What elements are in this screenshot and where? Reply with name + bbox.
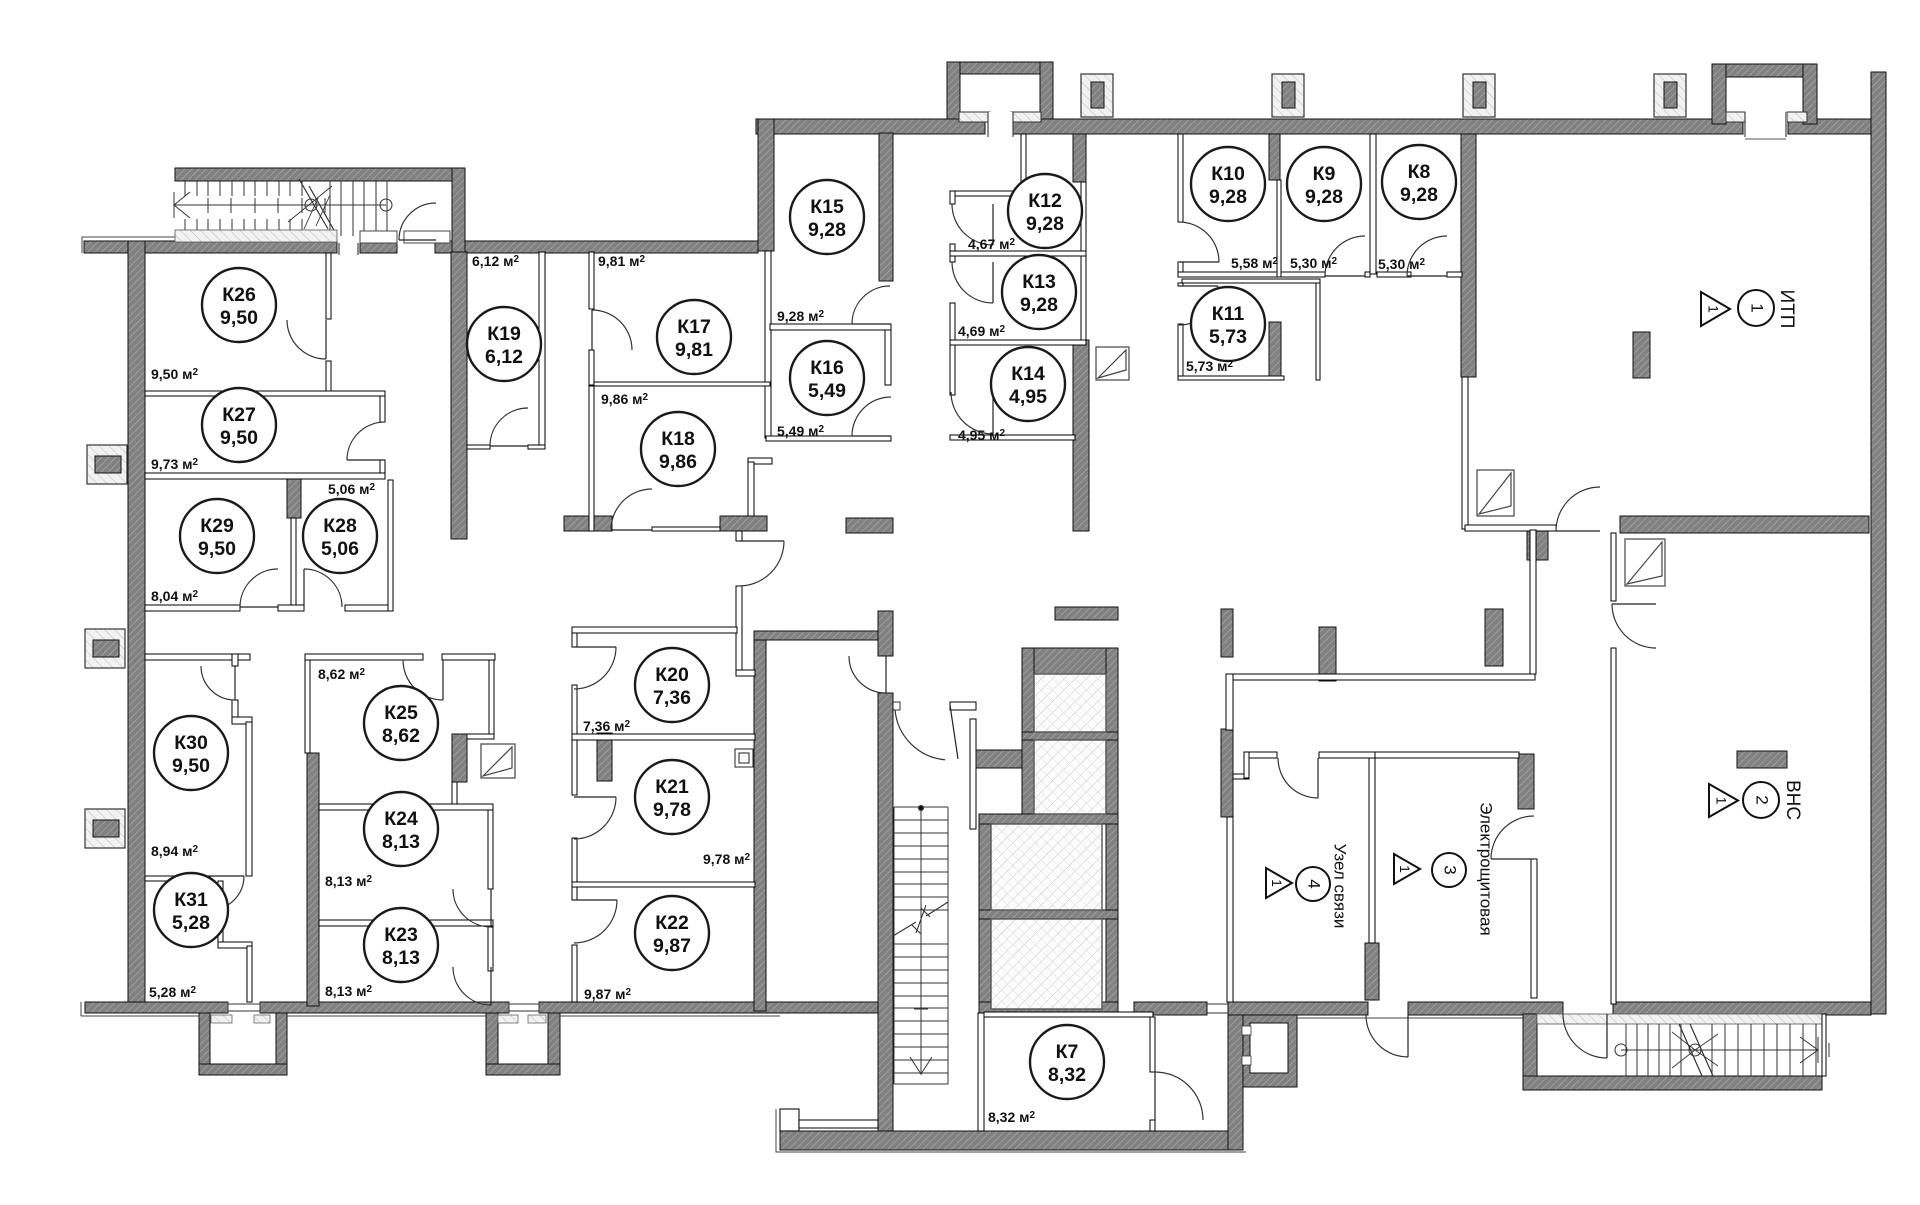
svg-text:9,50: 9,50 [220,307,258,329]
svg-text:5,28: 5,28 [172,912,210,934]
svg-text:4,95 м2: 4,95 м2 [958,427,1006,443]
svg-text:ВНС: ВНС [1782,780,1803,820]
svg-text:9,78: 9,78 [653,799,691,821]
svg-text:9,81 м2: 9,81 м2 [598,253,646,269]
svg-text:8,13 м2: 8,13 м2 [325,983,373,999]
svg-text:7,36 м2: 7,36 м2 [583,718,631,734]
svg-text:К13: К13 [1022,271,1056,293]
svg-text:5,30 м2: 5,30 м2 [1290,255,1338,271]
svg-text:9,28: 9,28 [1209,186,1247,208]
svg-text:1: 1 [1397,865,1413,873]
svg-text:К25: К25 [384,702,418,724]
svg-text:3: 3 [1441,865,1460,874]
svg-text:8,94 м2: 8,94 м2 [151,843,199,859]
svg-text:5,49 м2: 5,49 м2 [777,423,825,439]
svg-text:6,12 м2: 6,12 м2 [472,253,520,269]
svg-text:К14: К14 [1011,363,1045,385]
svg-text:2: 2 [1753,795,1772,804]
svg-text:К28: К28 [323,515,357,537]
svg-text:1: 1 [1713,797,1729,805]
svg-text:К30: К30 [174,732,208,754]
svg-text:8,32: 8,32 [1048,1064,1086,1086]
svg-text:5,06: 5,06 [321,538,359,560]
svg-text:8,13 м2: 8,13 м2 [325,873,373,889]
svg-text:9,87: 9,87 [653,935,691,957]
svg-text:9,28: 9,28 [808,219,846,241]
svg-text:К26: К26 [222,284,256,306]
svg-text:4,67 м2: 4,67 м2 [968,236,1016,252]
svg-text:9,50 м2: 9,50 м2 [151,366,199,382]
svg-text:К7: К7 [1056,1041,1079,1063]
svg-text:К19: К19 [487,323,521,345]
svg-text:К16: К16 [810,357,844,379]
svg-text:6,12: 6,12 [485,346,523,368]
svg-text:К20: К20 [655,664,689,686]
svg-text:К8: К8 [1408,161,1431,183]
svg-text:5,49: 5,49 [808,380,846,402]
svg-text:К9: К9 [1313,163,1336,185]
svg-text:Узел связи: Узел связи [1331,844,1350,929]
svg-text:К11: К11 [1212,303,1245,325]
svg-text:9,28: 9,28 [1020,294,1058,316]
svg-text:5,30 м2: 5,30 м2 [1378,256,1426,272]
svg-text:К17: К17 [677,316,711,338]
svg-text:1: 1 [1269,879,1285,887]
svg-text:К15: К15 [810,196,844,218]
svg-text:8,04 м2: 8,04 м2 [151,588,199,604]
svg-text:К12: К12 [1028,190,1062,212]
svg-text:1: 1 [1705,305,1721,313]
svg-text:Электрощитовая: Электрощитовая [1477,802,1496,935]
svg-text:4: 4 [1305,879,1324,888]
svg-text:7,36: 7,36 [653,687,691,709]
svg-text:К24: К24 [384,808,418,830]
svg-text:9,73 м2: 9,73 м2 [151,456,199,472]
svg-text:9,50: 9,50 [198,538,236,560]
svg-text:9,50: 9,50 [220,427,258,449]
svg-text:9,87 м2: 9,87 м2 [584,986,632,1002]
svg-text:9,28 м2: 9,28 м2 [777,308,825,324]
svg-text:9,28: 9,28 [1305,186,1343,208]
svg-text:5,28 м2: 5,28 м2 [149,984,197,1000]
svg-text:9,81: 9,81 [675,339,713,361]
svg-text:5,73: 5,73 [1209,326,1247,348]
svg-text:9,86 м2: 9,86 м2 [601,391,649,407]
svg-text:8,62 м2: 8,62 м2 [318,666,366,682]
svg-text:К27: К27 [222,404,256,426]
svg-text:9,86: 9,86 [659,451,697,473]
svg-text:8,32 м2: 8,32 м2 [988,1109,1036,1125]
svg-text:4,69 м2: 4,69 м2 [958,323,1006,339]
svg-text:9,28: 9,28 [1400,184,1438,206]
svg-text:К10: К10 [1211,163,1245,185]
svg-text:8,13: 8,13 [382,947,420,969]
svg-text:К21: К21 [655,776,689,798]
svg-text:К29: К29 [200,515,234,537]
svg-text:1: 1 [1748,303,1767,312]
svg-text:9,78 м2: 9,78 м2 [703,851,751,867]
svg-text:5,73 м2: 5,73 м2 [1186,358,1234,374]
svg-text:К31: К31 [174,889,208,911]
svg-text:К18: К18 [661,428,695,450]
svg-text:К22: К22 [655,912,689,934]
svg-text:5,06 м2: 5,06 м2 [328,481,376,497]
svg-text:К23: К23 [384,924,418,946]
svg-text:9,28: 9,28 [1026,213,1064,235]
svg-text:8,62: 8,62 [382,725,420,747]
svg-text:5,58 м2: 5,58 м2 [1231,255,1279,271]
svg-text:9,50: 9,50 [172,755,210,777]
svg-text:8,13: 8,13 [382,831,420,853]
svg-text:4,95: 4,95 [1009,386,1047,408]
svg-text:ИТП: ИТП [1776,290,1797,329]
